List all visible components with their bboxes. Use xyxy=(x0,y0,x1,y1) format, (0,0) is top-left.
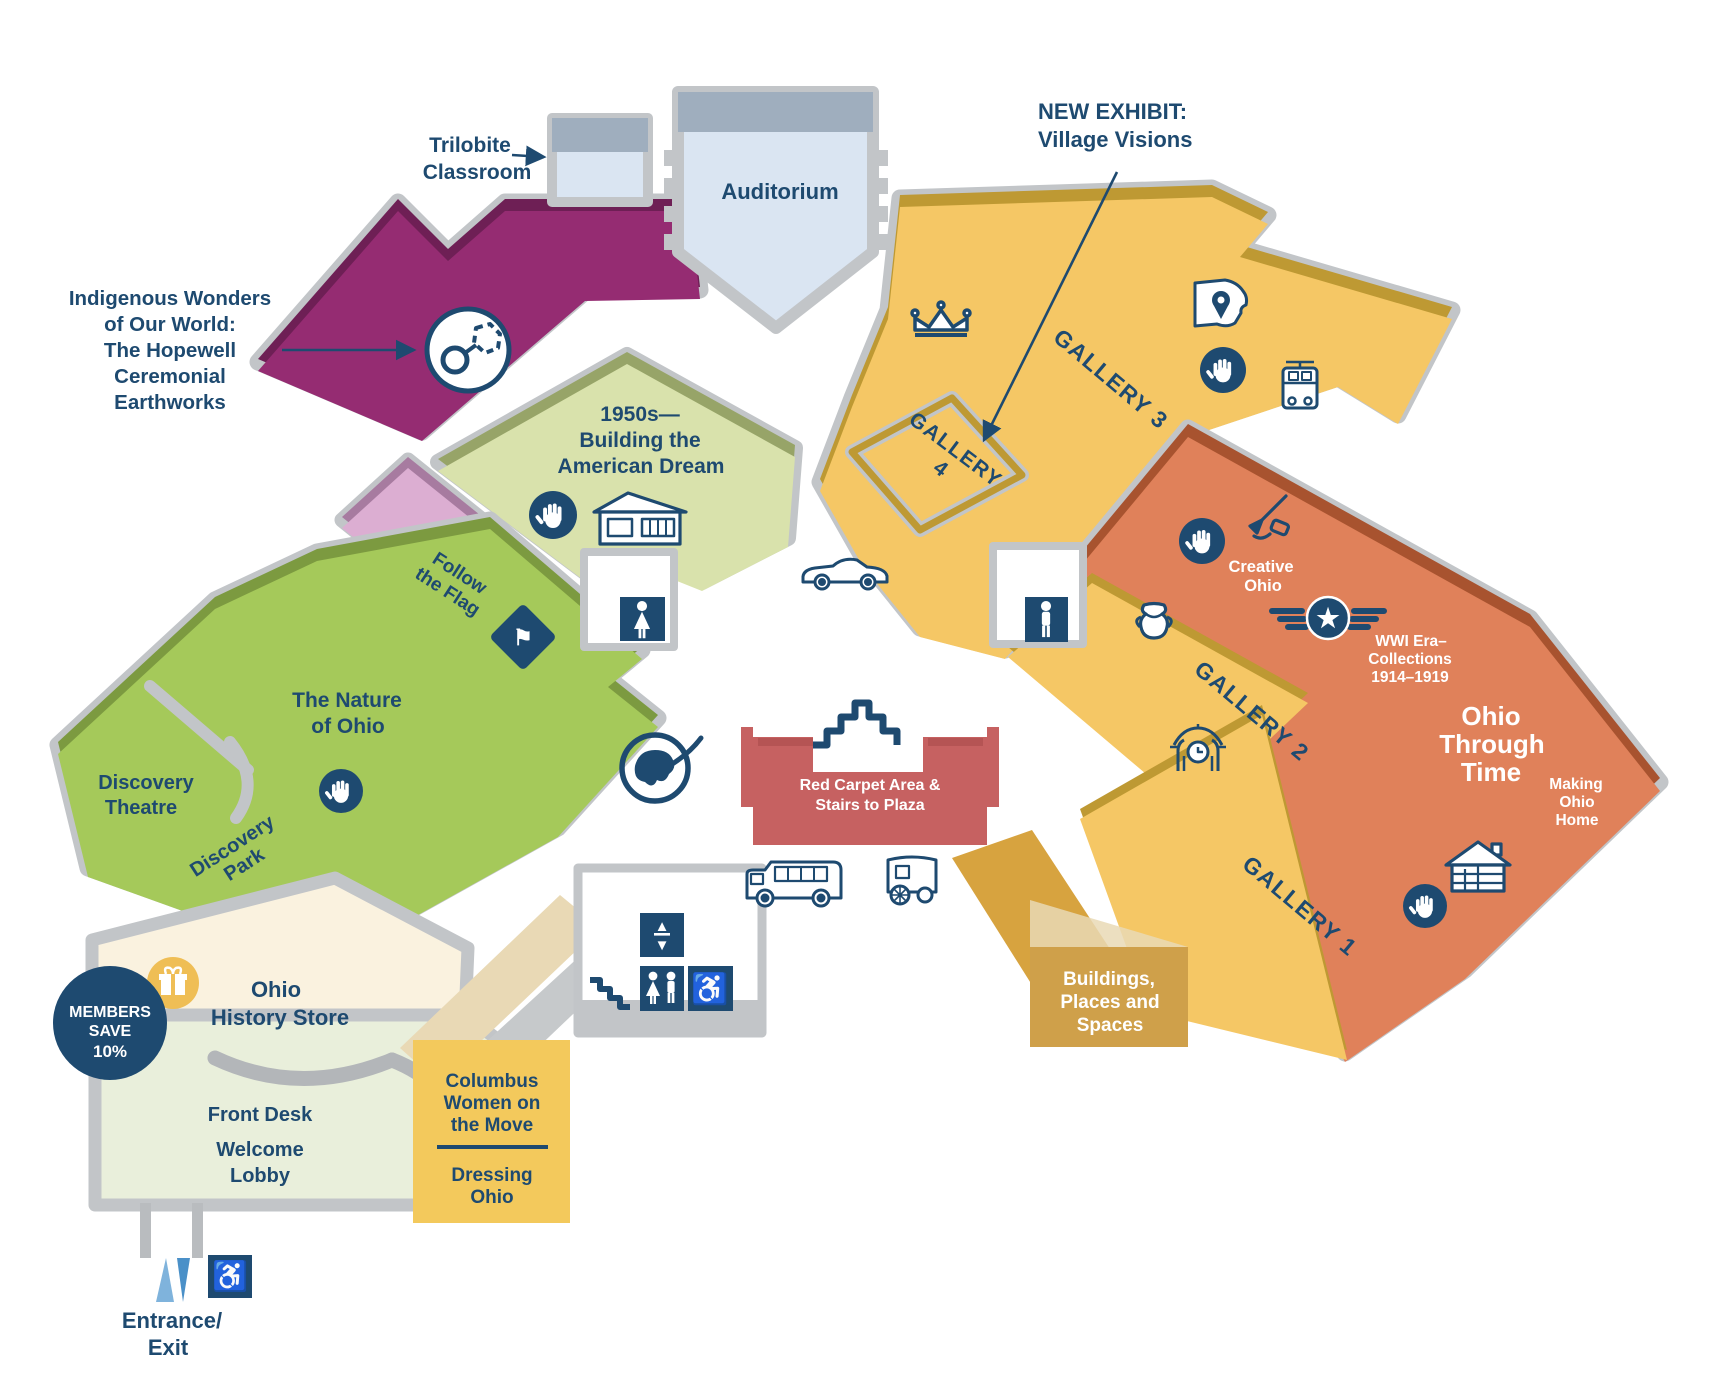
svg-text:NEW EXHIBIT:: NEW EXHIBIT: xyxy=(1038,99,1187,124)
ohio-state-pin-icon xyxy=(1195,280,1247,326)
wheelchair-icon-entrance: ♿ xyxy=(208,1255,252,1298)
svg-text:Theatre: Theatre xyxy=(105,797,177,819)
svg-text:Collections: Collections xyxy=(1368,651,1452,668)
svg-text:Building the: Building the xyxy=(579,429,700,452)
label-new-exhibit: NEW EXHIBIT: Village Visions xyxy=(1038,99,1192,152)
vase-icon xyxy=(1137,604,1172,639)
svg-text:Places and: Places and xyxy=(1060,992,1159,1013)
svg-text:Trilobite: Trilobite xyxy=(429,134,511,157)
svg-text:Indigenous Wonders: Indigenous Wonders xyxy=(69,287,271,310)
label-entrance-exit: Entrance/ Exit xyxy=(122,1308,222,1360)
svg-text:1914–1919: 1914–1919 xyxy=(1371,669,1449,686)
hand-icon-gallery3 xyxy=(1200,347,1246,393)
mens-restroom-icon xyxy=(1025,597,1068,642)
svg-text:Village Visions: Village Visions xyxy=(1038,127,1192,152)
svg-text:Spaces: Spaces xyxy=(1077,1015,1144,1036)
label-auditorium: Auditorium xyxy=(721,179,838,204)
svg-text:Creative: Creative xyxy=(1228,558,1293,576)
carriage-icon xyxy=(888,857,936,904)
svg-text:Dressing: Dressing xyxy=(451,1165,532,1186)
restroom-icon xyxy=(640,966,684,1011)
svg-text:Columbus: Columbus xyxy=(446,1071,539,1092)
svg-text:MEMBERS: MEMBERS xyxy=(69,1004,151,1021)
svg-text:Ohio: Ohio xyxy=(1461,701,1520,731)
svg-text:Home: Home xyxy=(1555,812,1598,829)
entrance-post-left xyxy=(140,1203,151,1258)
svg-text:Entrance/: Entrance/ xyxy=(122,1308,222,1333)
svg-text:Discovery: Discovery xyxy=(98,772,194,794)
svg-text:♿: ♿ xyxy=(691,971,728,1006)
svg-text:Red Carpet Area &: Red Carpet Area & xyxy=(800,777,941,794)
svg-text:The Nature: The Nature xyxy=(292,689,402,712)
old-bus-icon xyxy=(747,862,841,906)
region-trilobite-classroom xyxy=(552,118,648,202)
svg-text:Ohio: Ohio xyxy=(251,977,301,1002)
svg-text:Welcome: Welcome xyxy=(216,1139,303,1161)
svg-text:Exit: Exit xyxy=(148,1335,189,1360)
svg-text:Lobby: Lobby xyxy=(230,1165,291,1187)
svg-text:Making: Making xyxy=(1549,776,1602,793)
svg-text:Classroom: Classroom xyxy=(423,161,532,184)
entrance-arrow-down-icon xyxy=(177,1258,190,1302)
elevator-icon: ▲ ▼ xyxy=(640,913,684,957)
svg-text:the Move: the Move xyxy=(451,1115,533,1136)
svg-text:Women on: Women on xyxy=(444,1093,541,1114)
svg-text:Ceremonial: Ceremonial xyxy=(114,365,226,388)
plaza-stairs-icon xyxy=(813,703,897,745)
earthworks-icon xyxy=(427,309,509,391)
entrance-post-right xyxy=(192,1203,203,1258)
mastodon-icon xyxy=(622,735,701,801)
svg-text:▲: ▲ xyxy=(655,918,670,935)
svg-text:Ohio: Ohio xyxy=(1244,577,1282,595)
svg-text:★: ★ xyxy=(1316,603,1340,633)
label-trilobite-classroom: Trilobite Classroom xyxy=(423,134,532,184)
svg-text:1950s—: 1950s— xyxy=(600,403,679,426)
svg-text:Ohio: Ohio xyxy=(1559,794,1594,811)
svg-text:▼: ▼ xyxy=(655,937,670,954)
label-wwi-era: WWI Era– Collections 1914–1919 xyxy=(1368,633,1452,686)
svg-text:Time: Time xyxy=(1461,757,1521,787)
label-columbus-women: Columbus Women on the Move xyxy=(444,1071,541,1136)
red-carpet-banner xyxy=(741,703,999,845)
label-indigenous-wonders: Indigenous Wonders of Our World: The Hop… xyxy=(69,287,271,414)
svg-text:WWI Era–: WWI Era– xyxy=(1375,633,1447,650)
label-front-desk: Front Desk xyxy=(208,1104,313,1126)
hand-icon-gallery1 xyxy=(1403,884,1447,928)
hand-icon-creative xyxy=(1179,518,1225,564)
svg-text:Stairs to Plaza: Stairs to Plaza xyxy=(815,797,924,814)
wheelchair-icon-landing: ♿ xyxy=(688,966,733,1011)
svg-text:History Store: History Store xyxy=(211,1005,349,1030)
womens-restroom-icon xyxy=(620,597,665,641)
svg-text:Buildings,: Buildings, xyxy=(1063,969,1155,990)
trolley-icon xyxy=(1283,362,1317,408)
trilobite-arrow xyxy=(512,155,544,157)
svg-text:⚑: ⚑ xyxy=(513,625,533,650)
hand-icon-1950s xyxy=(529,491,577,539)
museum-floor-map: ⚑ ★ xyxy=(0,0,1721,1398)
svg-text:of Ohio: of Ohio xyxy=(311,715,384,738)
svg-text:SAVE: SAVE xyxy=(89,1023,132,1040)
svg-text:Through: Through xyxy=(1439,729,1544,759)
svg-text:Ohio: Ohio xyxy=(470,1187,513,1208)
svg-text:♿: ♿ xyxy=(212,1259,248,1293)
svg-text:10%: 10% xyxy=(93,1042,127,1061)
svg-text:Earthworks: Earthworks xyxy=(114,391,226,414)
entrance-arrow-up-icon xyxy=(156,1258,174,1302)
svg-text:The Hopewell: The Hopewell xyxy=(104,339,236,362)
svg-text:American Dream: American Dream xyxy=(558,455,725,478)
floor-plan-canvas: ⚑ ★ xyxy=(0,0,1721,1398)
hand-icon-nature xyxy=(319,769,363,813)
svg-text:of Our World:: of Our World: xyxy=(104,313,236,336)
